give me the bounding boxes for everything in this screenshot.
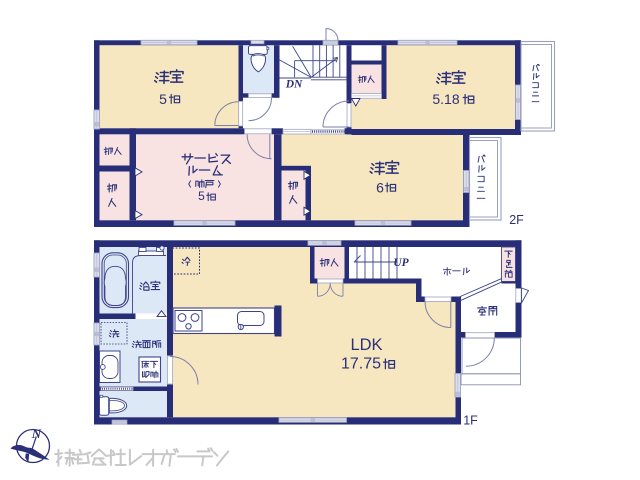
svg-text:17.75: 17.75 (341, 355, 381, 372)
svg-text:LDK: LDK (350, 336, 382, 354)
svg-text:UP: UP (393, 257, 409, 269)
svg-text:DN: DN (285, 79, 303, 91)
svg-text:N: N (31, 426, 42, 441)
svg-text:2F: 2F (509, 213, 524, 227)
svg-text:1F: 1F (463, 414, 478, 428)
svg-text:5: 5 (159, 91, 167, 107)
svg-text:5.18: 5.18 (432, 91, 459, 107)
svg-text:6: 6 (376, 180, 384, 196)
svg-text:5: 5 (198, 189, 205, 203)
